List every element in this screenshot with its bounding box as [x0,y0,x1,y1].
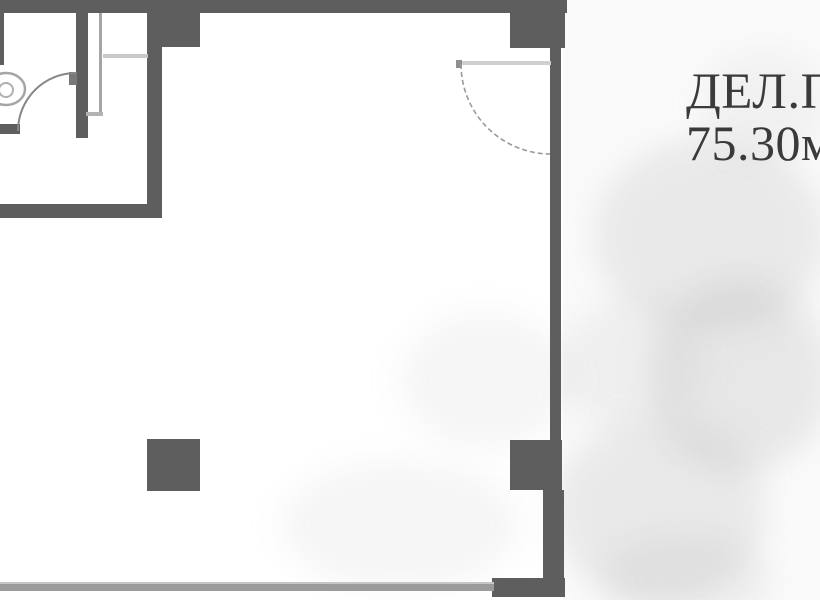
room-label: ДЕЛ.П 75.30м [686,67,820,169]
bathroom-door-swing-arc [18,73,76,131]
room-name-label: ДЕЛ.П [686,67,820,118]
main-door-swing-arc [461,64,550,154]
floorplan-image: ДЕЛ.П 75.30м [0,0,820,600]
room-area-label: 75.30м [686,118,820,169]
